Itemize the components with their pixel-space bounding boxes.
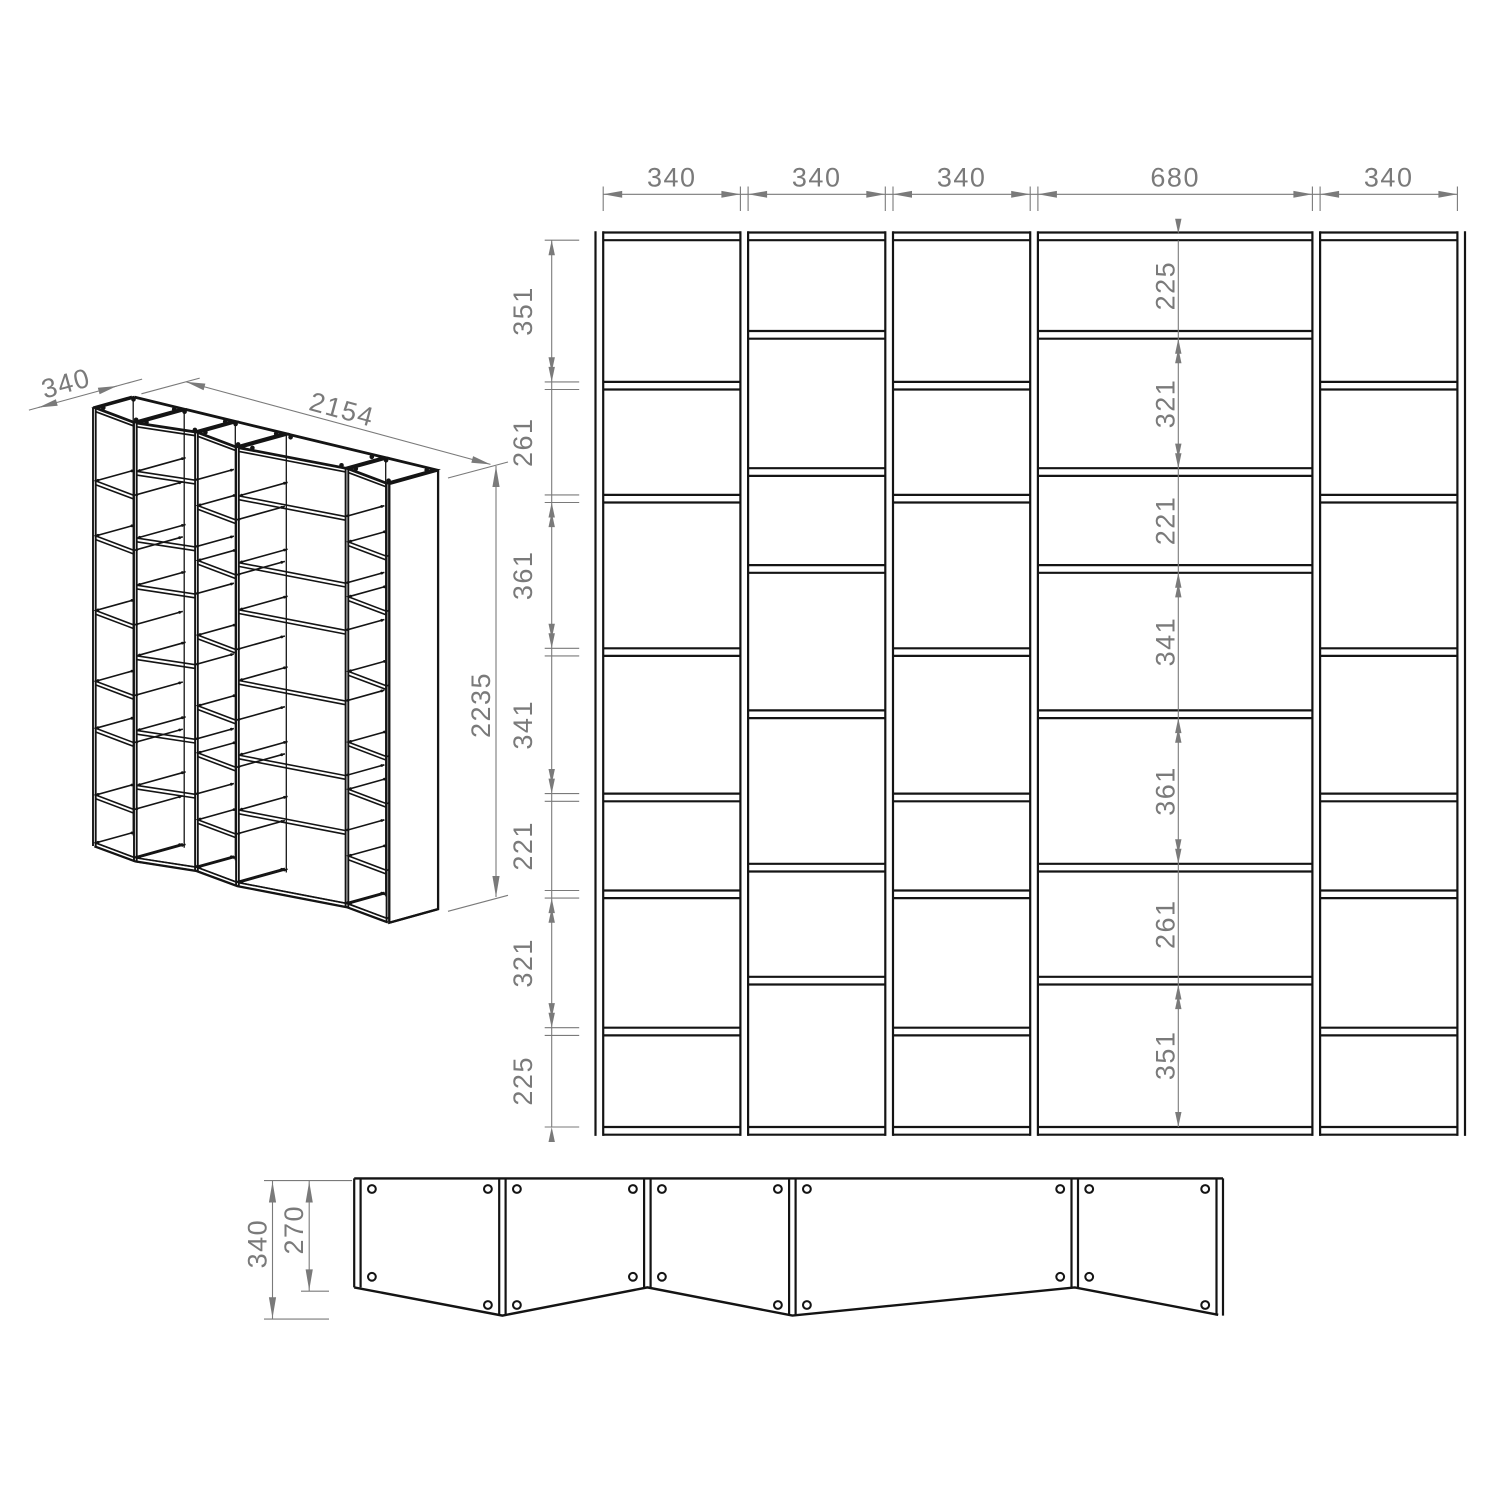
svg-text:261: 261	[508, 417, 538, 467]
svg-text:340: 340	[243, 1219, 273, 1269]
svg-text:261: 261	[1151, 899, 1181, 949]
svg-text:270: 270	[279, 1205, 309, 1255]
svg-text:680: 680	[1150, 163, 1200, 193]
svg-text:2235: 2235	[466, 672, 496, 738]
svg-text:361: 361	[1151, 766, 1181, 816]
svg-text:340: 340	[937, 163, 987, 193]
svg-text:221: 221	[508, 821, 538, 871]
svg-text:225: 225	[1151, 261, 1181, 311]
svg-text:321: 321	[508, 938, 538, 988]
svg-text:341: 341	[1151, 617, 1181, 667]
svg-text:351: 351	[1151, 1031, 1181, 1081]
svg-text:321: 321	[1151, 379, 1181, 429]
svg-text:340: 340	[647, 163, 697, 193]
svg-text:221: 221	[1151, 496, 1181, 546]
svg-text:351: 351	[508, 286, 538, 336]
svg-text:225: 225	[508, 1056, 538, 1106]
svg-text:341: 341	[508, 700, 538, 750]
svg-text:340: 340	[1364, 163, 1414, 193]
svg-text:340: 340	[792, 163, 842, 193]
svg-text:361: 361	[508, 551, 538, 601]
